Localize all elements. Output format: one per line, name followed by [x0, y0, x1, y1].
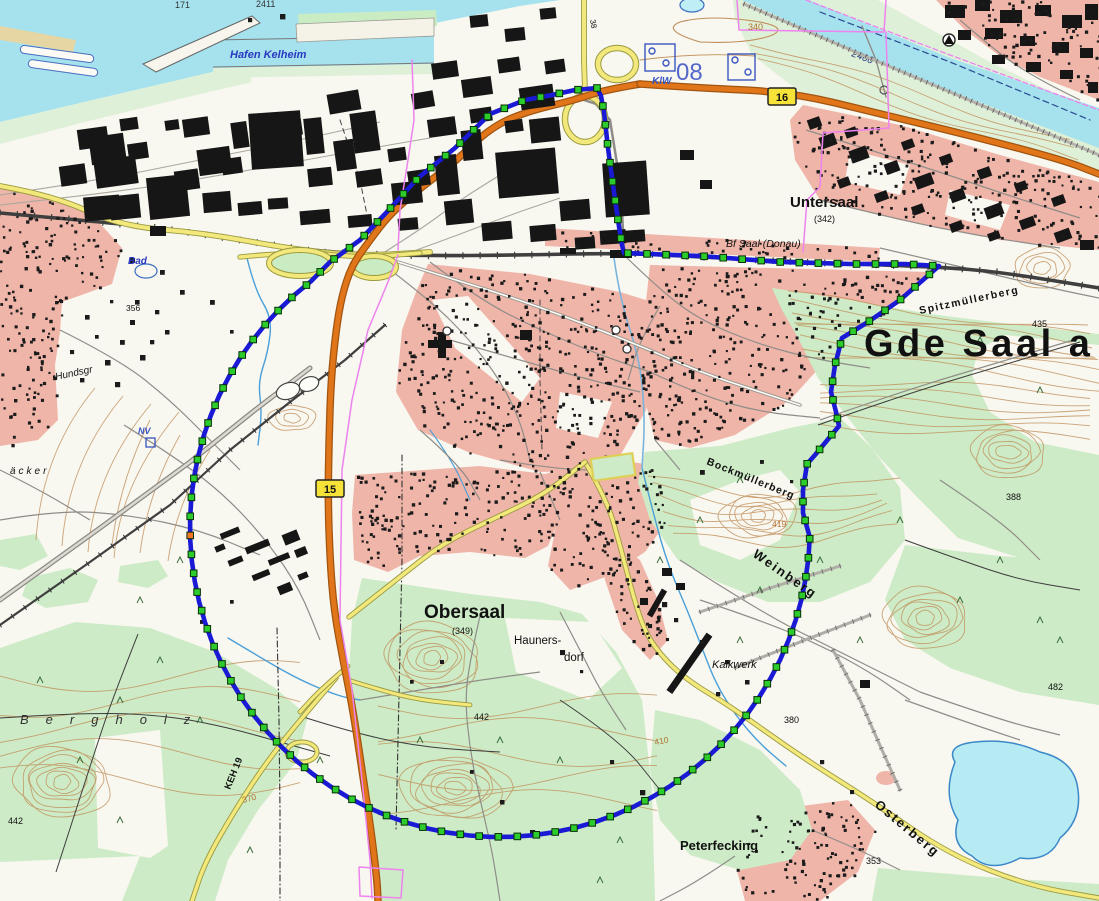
svg-text:Hauners-: Hauners- — [514, 635, 561, 647]
svg-text:442: 442 — [474, 712, 489, 722]
svg-text:KlW: KlW — [652, 76, 673, 87]
svg-text:482: 482 — [1048, 682, 1063, 692]
svg-text:353: 353 — [866, 856, 881, 866]
svg-text:419: 419 — [772, 519, 786, 529]
svg-text:435: 435 — [1032, 319, 1047, 329]
svg-text:356: 356 — [126, 303, 140, 313]
svg-text:442: 442 — [8, 816, 23, 826]
svg-text:NV: NV — [138, 426, 151, 436]
svg-text:340: 340 — [748, 22, 763, 32]
svg-text:(342): (342) — [814, 214, 835, 224]
svg-text:388: 388 — [1006, 492, 1021, 502]
svg-text:Hafen Kelheim: Hafen Kelheim — [230, 49, 307, 61]
svg-text:08: 08 — [676, 59, 703, 86]
svg-text:15: 15 — [324, 484, 336, 496]
svg-text:Gde Saal a: Gde Saal a — [864, 323, 1093, 365]
svg-text:Peterfecking: Peterfecking — [680, 838, 758, 853]
svg-text:Obersaal: Obersaal — [424, 602, 505, 623]
svg-text:dorf: dorf — [564, 652, 585, 664]
svg-text:Untersaal: Untersaal — [790, 194, 858, 211]
svg-text:Bad: Bad — [128, 256, 148, 267]
svg-text:171: 171 — [175, 0, 190, 10]
svg-text:380: 380 — [784, 715, 799, 725]
svg-text:Kalkwerk: Kalkwerk — [712, 659, 757, 671]
svg-text:(349): (349) — [452, 626, 473, 636]
svg-text:äcker: äcker — [10, 466, 49, 477]
svg-text:Bf Saal (Donau): Bf Saal (Donau) — [726, 238, 801, 250]
svg-text:2411: 2411 — [256, 0, 275, 9]
svg-text:Bergholz: Bergholz — [20, 712, 207, 727]
svg-text:16: 16 — [776, 92, 788, 104]
